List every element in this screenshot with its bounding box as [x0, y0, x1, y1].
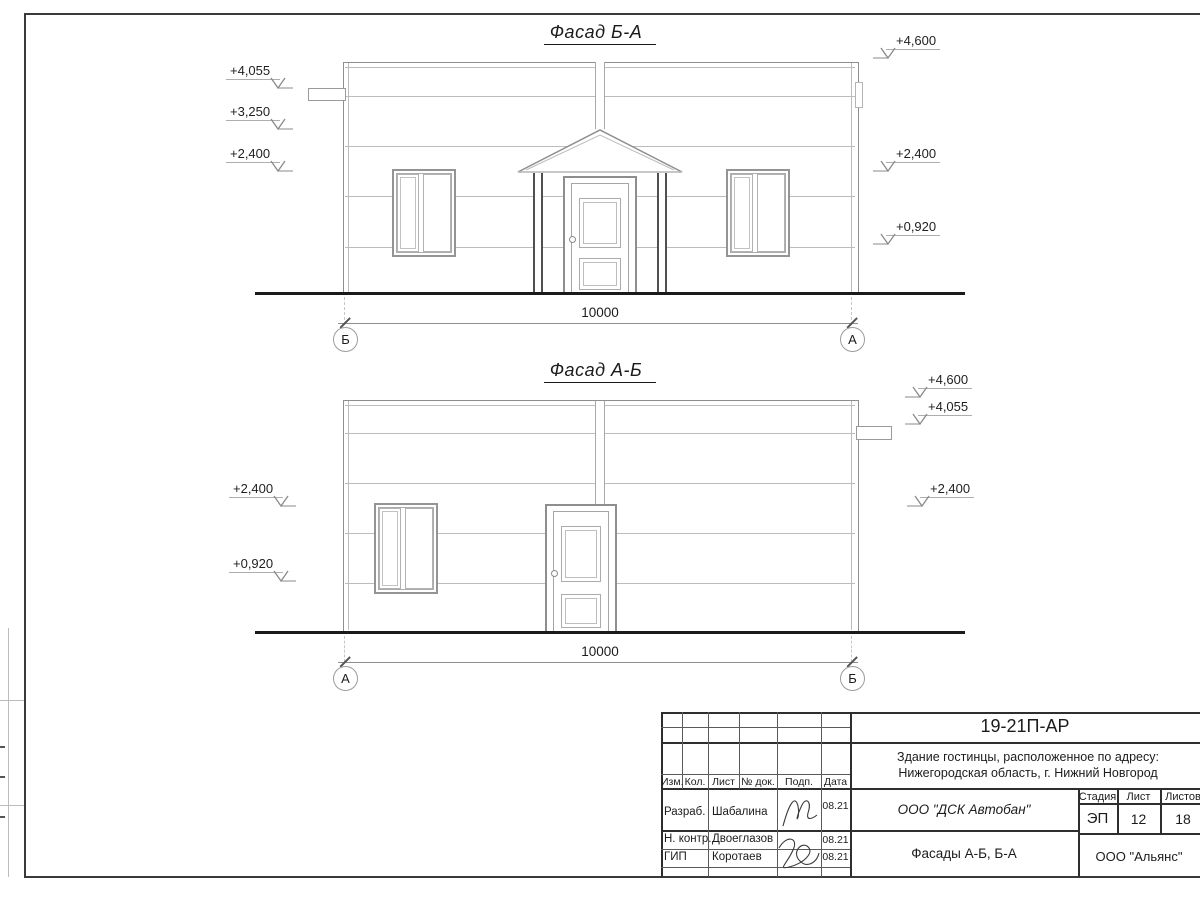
porch-column-left: [533, 173, 543, 292]
col-kol: Кол.: [682, 776, 708, 788]
door-bottom-panel: [561, 594, 601, 628]
extension-line: [344, 636, 345, 662]
sheet-label: Лист: [1117, 791, 1160, 803]
facade-1-window-right: [726, 169, 790, 257]
facade-1-window-left: [392, 169, 456, 257]
row-nkontr-date: 08.21: [821, 834, 850, 846]
facade-2-dimension-line: [338, 662, 858, 663]
signature-razrab: [779, 792, 819, 830]
stage-value: ЭП: [1078, 810, 1117, 827]
facade-1-corner-board-right: [851, 63, 852, 292]
elevation-f1-left-1: +3,250: [226, 104, 280, 121]
row-razrab-name: Шабалина: [712, 806, 768, 818]
facade-2-corner-board-left: [348, 401, 349, 630]
title-block-code: 19-21П-АР: [850, 716, 1200, 737]
facade-1-axis-left: Б: [333, 327, 358, 352]
col-izm: Изм.: [661, 776, 682, 788]
facade-2-dimension-text: 10000: [450, 644, 750, 659]
facade-2-door: [545, 504, 617, 633]
signature-gip: [773, 832, 821, 876]
elevation-f1-left-2: +2,400: [226, 146, 280, 163]
facade-1-vent-pipe: [595, 62, 605, 129]
door-leaf: [553, 511, 609, 633]
door-glass-panel: [561, 526, 601, 582]
elevation-f2-left-1: +0,920: [229, 556, 283, 573]
col-data: Дата: [821, 776, 850, 788]
facade-1-door: [563, 176, 637, 294]
extension-line: [851, 636, 852, 662]
window-sash-left: [379, 508, 401, 589]
elevation-f2-right-0: +4,600: [918, 372, 972, 389]
facade-1-wall-tab: [855, 82, 863, 108]
elevation-f1-right-2: +0,920: [886, 219, 940, 236]
facade-1-pipe-outlet: [308, 88, 346, 101]
address-line-2: Нижегородская область, г. Нижний Новгоро…: [856, 765, 1200, 781]
porch-roof: [512, 126, 688, 174]
facade-2-axis-left: А: [333, 666, 358, 691]
door-knob: [551, 570, 558, 577]
door-leaf: [571, 183, 629, 294]
facade-1-dimension-line: [338, 323, 858, 324]
row-nkontr-role: Н. контр.: [664, 833, 711, 845]
frame-top-line: [24, 13, 1200, 15]
window-sash-right: [405, 508, 433, 589]
window-sash-right: [757, 174, 785, 252]
porch-column-right: [657, 173, 667, 292]
row-gip-date: 08.21: [821, 851, 850, 863]
col-podp: Подп.: [777, 776, 821, 788]
window-sash-left: [397, 174, 419, 252]
org2-cell: ООО "Альянс": [1078, 849, 1200, 864]
row-gip-name: Коротаев: [712, 851, 762, 863]
title-block-address: Здание гостинцы, расположенное по адресу…: [856, 749, 1200, 781]
sheets-label: Листов: [1160, 791, 1200, 803]
address-line-1: Здание гостинцы, расположенное по адресу…: [856, 749, 1200, 765]
facade-1-dimension-text: 10000: [450, 305, 750, 320]
col-list: Лист: [708, 776, 739, 788]
col-doc: № док.: [739, 776, 777, 788]
facade-2-window: [374, 503, 438, 594]
facade-1-axis-right: А: [840, 327, 865, 352]
row-gip-role: ГИП: [664, 851, 687, 863]
facade-2-ground-line: [255, 631, 965, 634]
facade-1-ground-line: [255, 292, 965, 295]
elevation-f2-right-2: +2,400: [920, 481, 974, 498]
row-razrab-date: 08.21: [821, 800, 850, 812]
elevation-f1-right-1: +2,400: [886, 146, 940, 163]
sheets-value: 18: [1160, 811, 1200, 827]
title-block: 19-21П-АР Здание гостинцы, расположенное…: [661, 712, 1200, 877]
facade-2-title: Фасад А-Б: [470, 360, 730, 381]
doc-title-cell: Фасады А-Б, Б-А: [850, 846, 1078, 861]
facade-2-vent-pipe: [595, 401, 605, 505]
row-nkontr-name: Двоеглазов: [712, 833, 773, 845]
facade-2-axis-right: Б: [840, 666, 865, 691]
drawing-sheet: Фасад Б-А: [0, 0, 1200, 900]
elevation-f1-right-0: +4,600: [886, 33, 940, 50]
facade-2-pipe-outlet: [856, 426, 892, 440]
window-sash-left: [731, 174, 753, 252]
elevation-f1-left-0: +4,055: [226, 63, 280, 80]
sheet-value: 12: [1117, 811, 1160, 827]
facade-1-corner-board-left: [348, 63, 349, 292]
stage-label: Стадия: [1078, 791, 1117, 803]
door-bottom-panel: [579, 258, 621, 290]
elevation-f2-left-0: +2,400: [229, 481, 283, 498]
facade-1-title: Фасад Б-А: [470, 22, 730, 43]
door-knob: [569, 236, 576, 243]
frame-left-line: [24, 13, 26, 878]
window-sash-right: [423, 174, 451, 252]
org-cell: ООО "ДСК Автобан": [850, 802, 1078, 817]
elevation-f2-right-1: +4,055: [918, 399, 972, 416]
facade-2-corner-board-right: [851, 401, 852, 630]
row-razrab-role: Разраб.: [664, 806, 705, 818]
door-glass-panel: [579, 198, 621, 248]
